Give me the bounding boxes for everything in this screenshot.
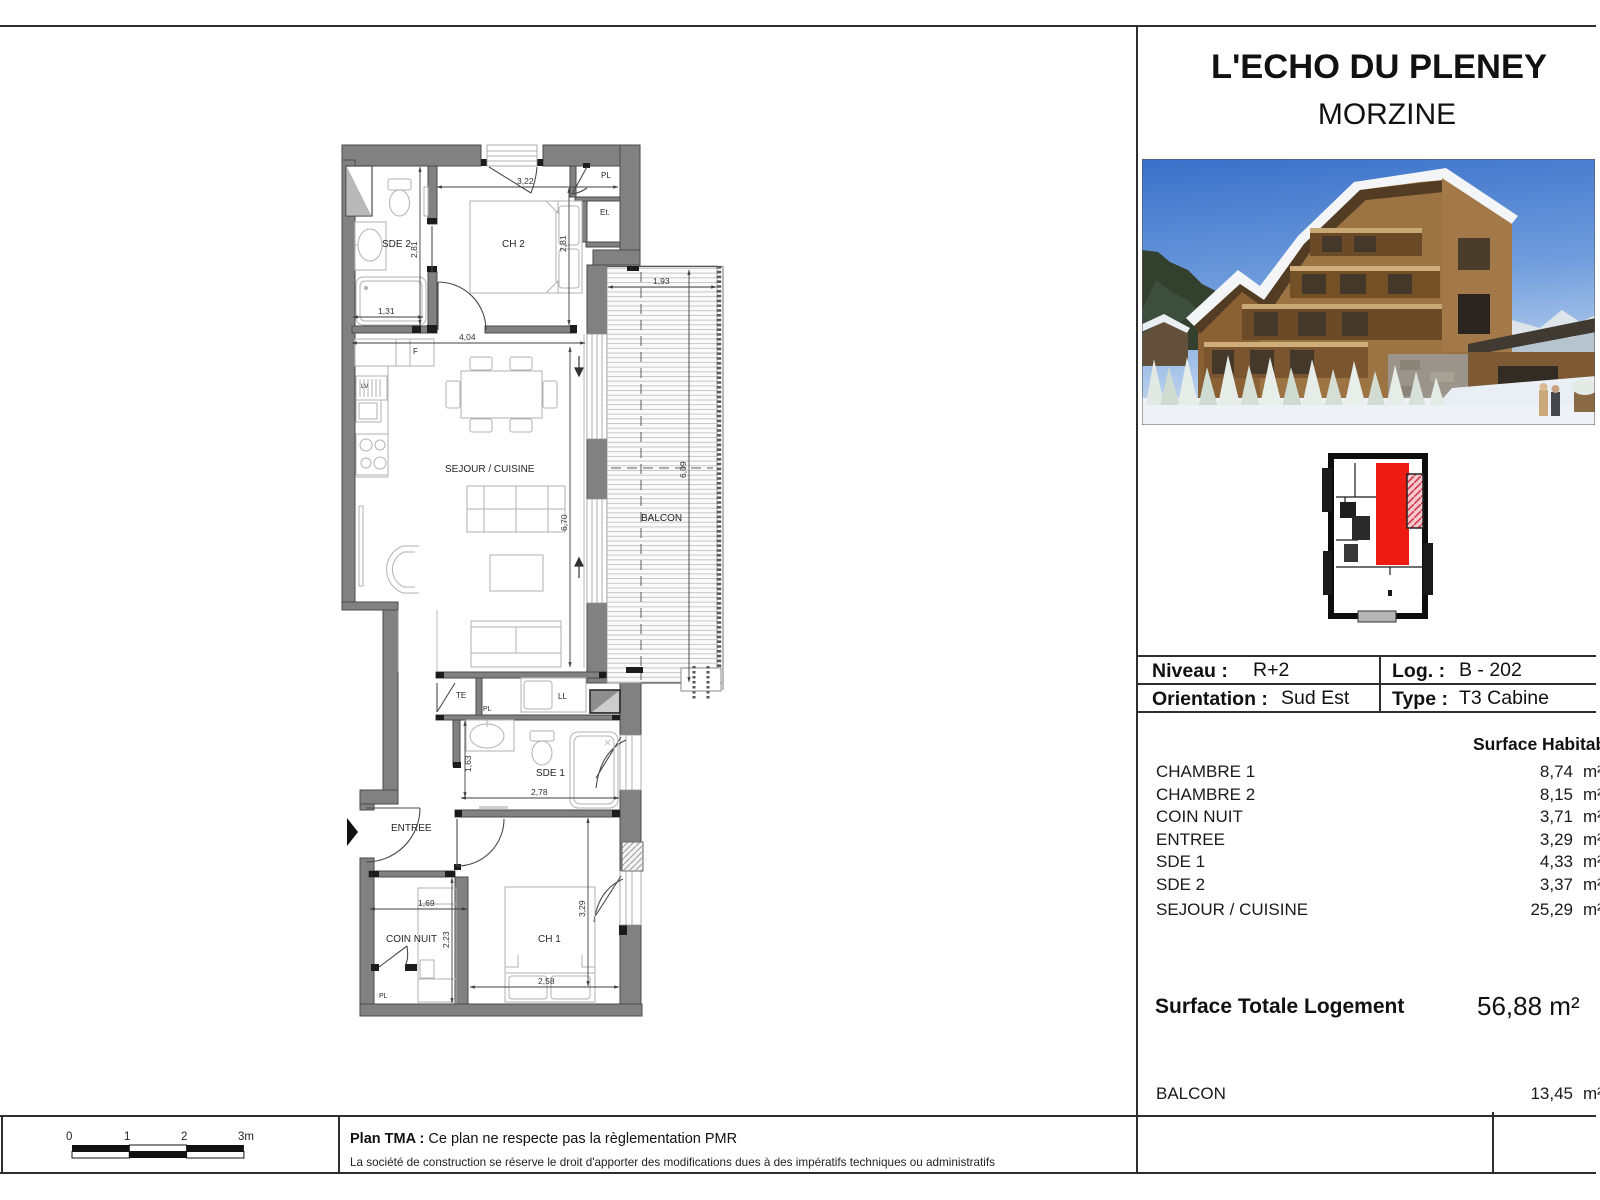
- svg-text:6,70: 6,70: [559, 514, 569, 531]
- svg-text:2,81: 2,81: [558, 235, 568, 252]
- svg-text:Log. :: Log. :: [1392, 660, 1445, 682]
- svg-text:LV: LV: [361, 383, 369, 390]
- svg-text:SDE 2: SDE 2: [1156, 875, 1205, 894]
- svg-text:4,33: 4,33: [1540, 852, 1573, 871]
- svg-text:Plan TMA : Ce plan ne respecte: Plan TMA : Ce plan ne respecte pas la rè…: [350, 1131, 737, 1147]
- svg-text:MORZINE: MORZINE: [1318, 98, 1456, 131]
- svg-text:CH 2: CH 2: [502, 239, 525, 250]
- svg-text:3m: 3m: [238, 1131, 254, 1143]
- svg-text:R+2: R+2: [1253, 659, 1289, 681]
- svg-text:COIN NUIT: COIN NUIT: [1156, 807, 1243, 826]
- svg-text:SEJOUR / CUISINE: SEJOUR / CUISINE: [1156, 900, 1308, 919]
- svg-text:25,29: 25,29: [1530, 900, 1573, 919]
- svg-text:8,74: 8,74: [1540, 762, 1573, 781]
- svg-text:Orientation :: Orientation :: [1152, 688, 1268, 710]
- svg-text:6,09: 6,09: [678, 461, 688, 478]
- svg-text:1,69: 1,69: [418, 898, 435, 908]
- svg-text:ENTREE: ENTREE: [1156, 830, 1225, 849]
- svg-text:La société de construction se: La société de construction se réserve le…: [350, 1155, 995, 1169]
- svg-text:PL: PL: [379, 993, 388, 1000]
- svg-text:m²: m²: [1583, 1084, 1600, 1103]
- svg-text:ENTREE: ENTREE: [391, 823, 432, 834]
- svg-text:1,93: 1,93: [653, 276, 670, 286]
- svg-text:m²: m²: [1583, 762, 1600, 781]
- svg-text:SDE 2: SDE 2: [382, 239, 411, 250]
- svg-text:2,58: 2,58: [538, 976, 555, 986]
- svg-text:13,45: 13,45: [1530, 1084, 1573, 1103]
- svg-text:m²: m²: [1583, 875, 1600, 894]
- svg-text:Niveau :: Niveau :: [1152, 660, 1228, 682]
- svg-text:COIN NUIT: COIN NUIT: [386, 934, 437, 945]
- svg-text:BALCON: BALCON: [641, 513, 682, 524]
- svg-text:2,23: 2,23: [441, 931, 451, 948]
- svg-text:PL: PL: [483, 706, 492, 713]
- svg-text:Type :: Type :: [1392, 688, 1448, 710]
- svg-text:TE: TE: [456, 691, 466, 700]
- svg-text:Surface Totale Logement: Surface Totale Logement: [1155, 995, 1404, 1018]
- svg-text:0: 0: [66, 1131, 72, 1143]
- svg-text:CHAMBRE 2: CHAMBRE 2: [1156, 785, 1255, 804]
- svg-text:CH 1: CH 1: [538, 934, 561, 945]
- svg-text:3,29: 3,29: [577, 900, 587, 917]
- svg-text:2: 2: [181, 1131, 187, 1143]
- svg-text:3,71: 3,71: [1540, 807, 1573, 826]
- svg-text:T3 Cabine: T3 Cabine: [1459, 687, 1549, 709]
- svg-text:m²: m²: [1583, 807, 1600, 826]
- svg-text:Sud Est: Sud Est: [1281, 687, 1350, 709]
- svg-text:4,04: 4,04: [459, 332, 476, 342]
- svg-text:Surface Habitable: Surface Habitable: [1473, 734, 1600, 754]
- svg-text:B - 202: B - 202: [1459, 659, 1522, 681]
- svg-text:56,88 m²: 56,88 m²: [1477, 991, 1580, 1021]
- svg-text:3,29: 3,29: [1540, 830, 1573, 849]
- svg-text:1,63: 1,63: [463, 755, 473, 772]
- svg-text:m²: m²: [1583, 830, 1600, 849]
- svg-text:SDE 1: SDE 1: [1156, 852, 1205, 871]
- svg-text:1,31: 1,31: [378, 306, 395, 316]
- svg-text:1: 1: [124, 1131, 130, 1143]
- svg-text:Et.: Et.: [600, 208, 610, 217]
- svg-text:m²: m²: [1583, 852, 1600, 871]
- svg-text:L'ECHO DU PLENEY: L'ECHO DU PLENEY: [1211, 48, 1547, 86]
- svg-text:PL: PL: [601, 171, 611, 180]
- svg-text:F: F: [413, 347, 418, 356]
- svg-text:2,78: 2,78: [531, 787, 548, 797]
- svg-text:SEJOUR / CUISINE: SEJOUR / CUISINE: [445, 464, 535, 475]
- svg-text:m²: m²: [1583, 900, 1600, 919]
- svg-text:BALCON: BALCON: [1156, 1084, 1226, 1103]
- svg-text:8,15: 8,15: [1540, 785, 1573, 804]
- svg-text:CHAMBRE 1: CHAMBRE 1: [1156, 762, 1255, 781]
- svg-text:3,22: 3,22: [517, 176, 534, 186]
- svg-text:3,37: 3,37: [1540, 875, 1573, 894]
- svg-text:LL: LL: [558, 692, 567, 701]
- svg-text:m²: m²: [1583, 785, 1600, 804]
- svg-text:SDE 1: SDE 1: [536, 768, 565, 779]
